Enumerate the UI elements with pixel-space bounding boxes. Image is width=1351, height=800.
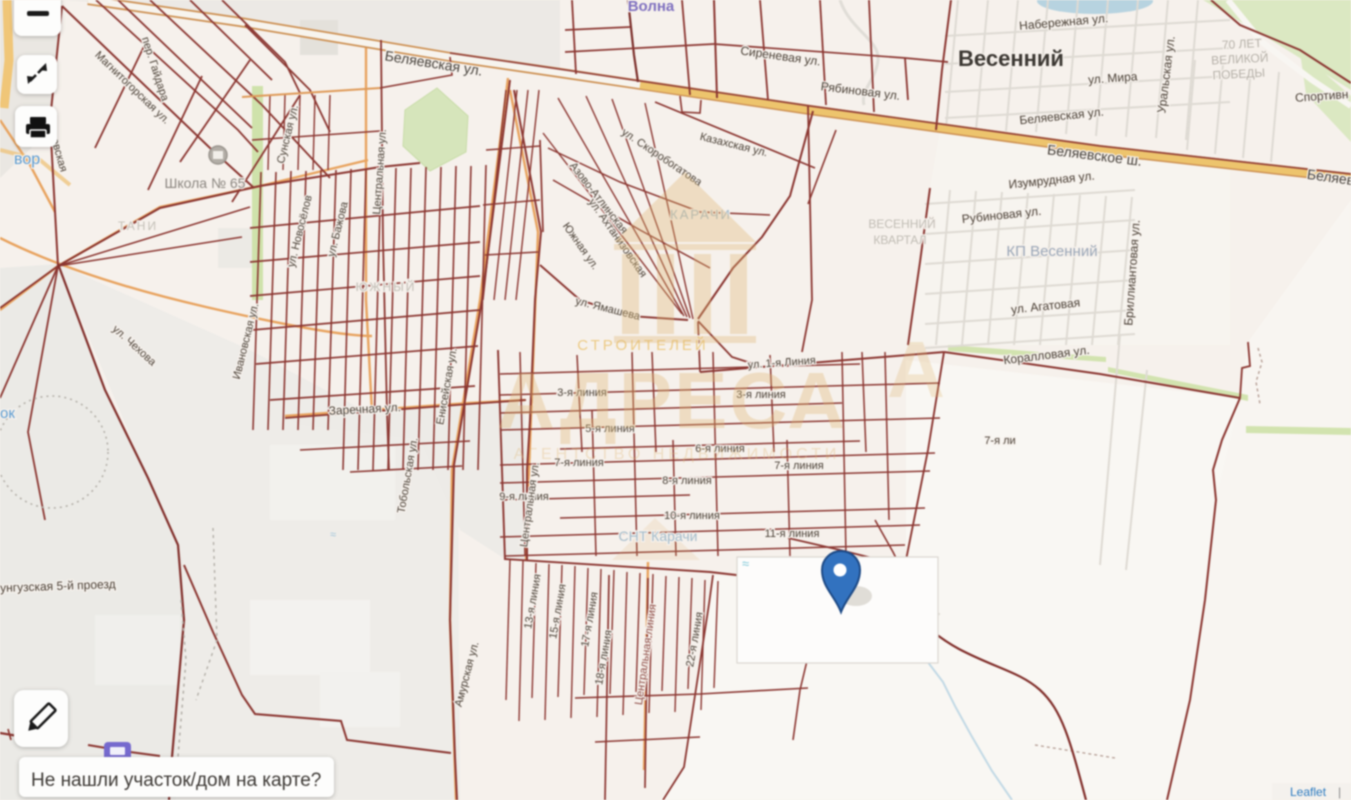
svg-text:11-я линия: 11-я линия (765, 528, 820, 540)
svg-text:А: А (887, 325, 945, 414)
svg-text:СНТ Карачи: СНТ Карачи (619, 528, 698, 544)
svg-text:АГЕНТСТВО НЕДВИЖИМОСТИ: АГЕНТСТВО НЕДВИЖИМОСТИ (514, 446, 841, 463)
svg-text:≈: ≈ (742, 556, 749, 571)
svg-text:Школа № 65: Школа № 65 (165, 175, 246, 191)
svg-text:КП Весенний: КП Весенний (1006, 243, 1097, 260)
svg-text:70 ЛЕТ: 70 ЛЕТ (1222, 36, 1263, 52)
svg-text:КВАРТАЛ: КВАРТАЛ (873, 233, 926, 247)
svg-text:ВЕСЕННИЙ: ВЕСЕННИЙ (868, 216, 935, 231)
svg-text:вор: вор (14, 151, 40, 168)
svg-text:ПОБЕДЫ: ПОБЕДЫ (1212, 66, 1265, 83)
svg-text:ок: ок (0, 405, 15, 422)
svg-text:|: | (1338, 785, 1341, 799)
svg-text:Весенний: Весенний (958, 46, 1064, 71)
svg-text:АДРЕСА: АДРЕСА (497, 356, 847, 445)
svg-text:7-я ли: 7-я ли (984, 435, 1015, 447)
svg-text:8-я линия: 8-я линия (662, 475, 712, 487)
svg-text:10-я линия: 10-я линия (664, 510, 720, 522)
svg-text:ТАНИ: ТАНИ (118, 219, 158, 233)
svg-text:Волна: Волна (628, 0, 675, 15)
svg-text:≈: ≈ (330, 529, 336, 541)
svg-text:ВЕЛИКОЙ: ВЕЛИКОЙ (1211, 50, 1269, 68)
svg-text:ЮЖНЫЙ: ЮЖНЫЙ (356, 279, 417, 294)
svg-text:Leaflet: Leaflet (1290, 785, 1327, 799)
svg-text:Не нашли участок/дом на карте?: Не нашли участок/дом на карте? (31, 770, 321, 791)
